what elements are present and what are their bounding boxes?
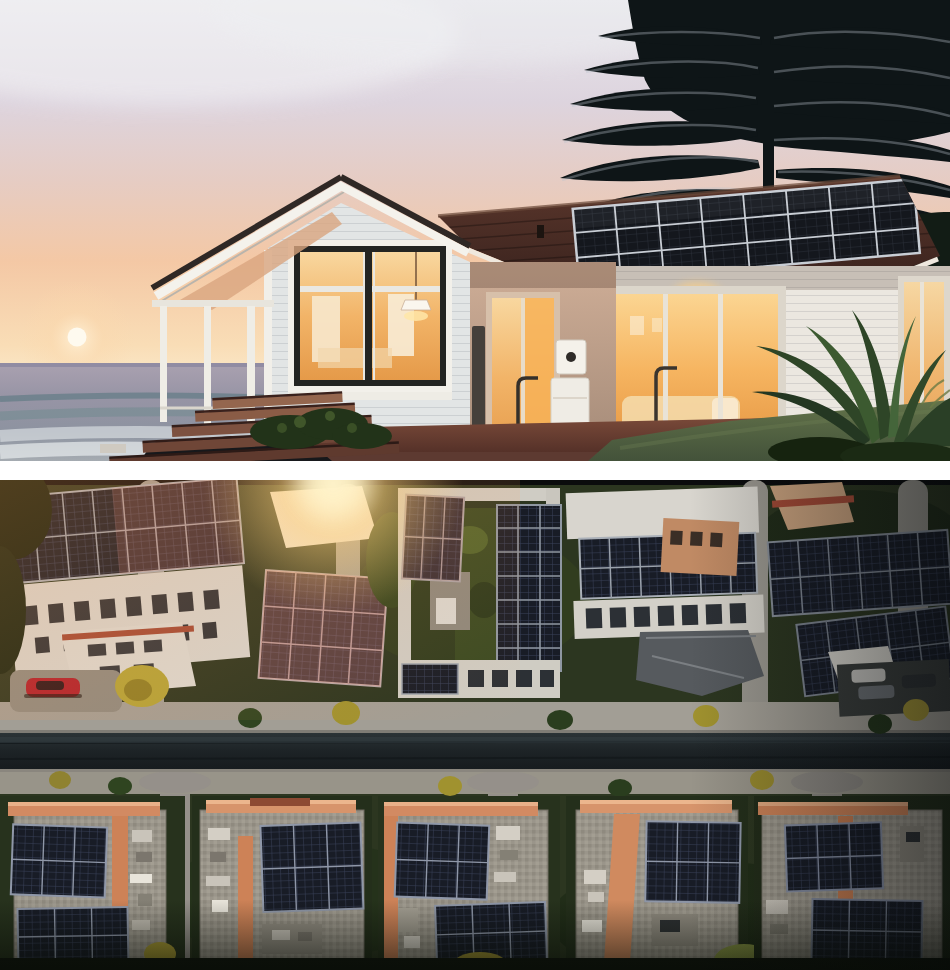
- screenshot-root: [0, 0, 950, 970]
- red-roof-edge: [250, 798, 310, 806]
- porch-beam: [152, 300, 274, 307]
- porch-column: [160, 306, 167, 422]
- wall-panel: [472, 326, 485, 428]
- window-mullion: [365, 252, 372, 380]
- stone-slab: [100, 444, 126, 453]
- pendant-lamp: [401, 300, 431, 310]
- photo-solar-neighborhood-aerial: [0, 480, 950, 970]
- battery-port: [566, 352, 576, 362]
- wall-art: [652, 318, 662, 332]
- bottom-vignette: [0, 900, 950, 970]
- hero-photo-canvas: [0, 0, 950, 461]
- sun: [68, 328, 87, 347]
- interior-counter: [318, 348, 392, 368]
- lamp-glow: [404, 311, 428, 321]
- right-vignette: [690, 480, 950, 970]
- photo-solar-house-sunset: [0, 0, 950, 461]
- white-divider: [0, 461, 950, 480]
- porch-column: [204, 306, 211, 424]
- picture-window: [288, 240, 452, 392]
- aerial-photo-canvas: [0, 480, 950, 970]
- wall-art: [630, 316, 644, 335]
- roof-vent: [537, 225, 544, 238]
- eave-shadow: [466, 262, 616, 288]
